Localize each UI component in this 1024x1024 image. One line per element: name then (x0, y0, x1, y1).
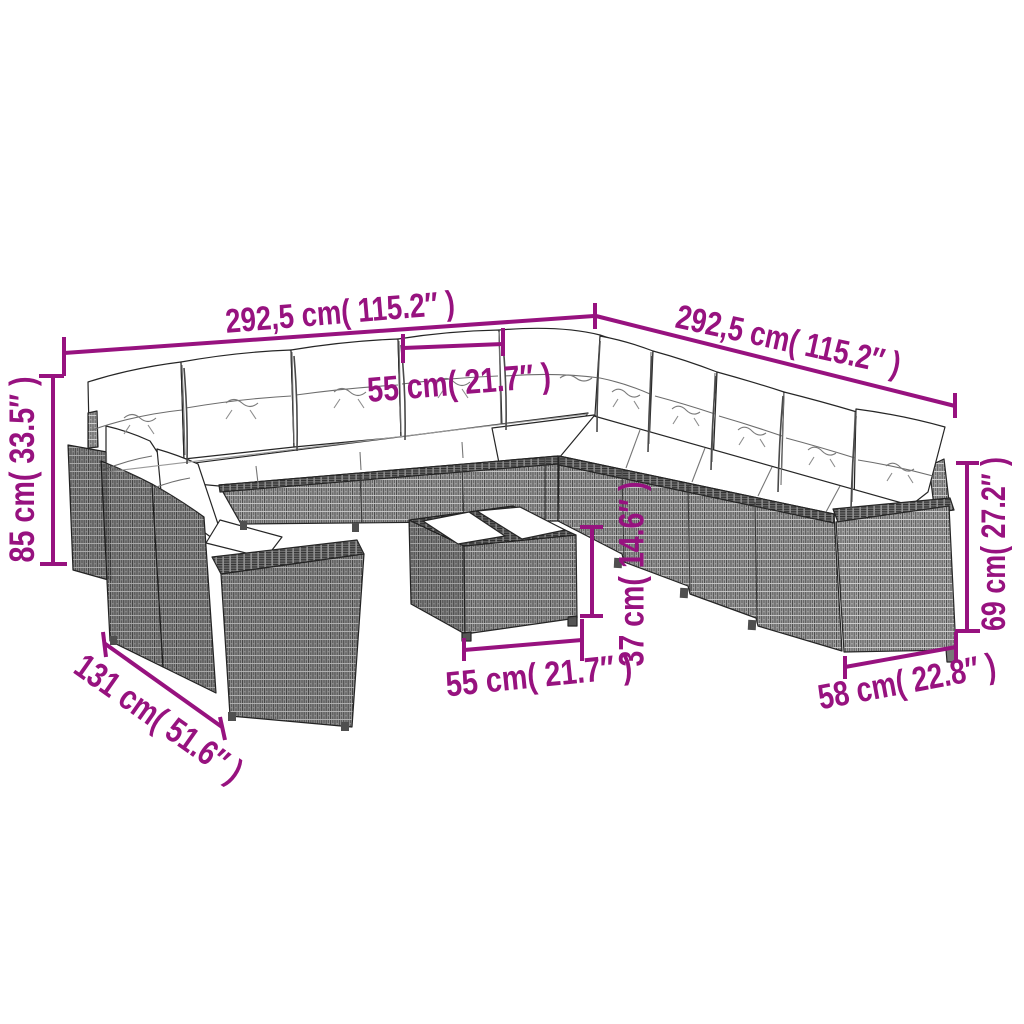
svg-text:85 cm( 33.5″ ): 85 cm( 33.5″ ) (3, 377, 42, 563)
svg-text:69 cm( 27.2″ ): 69 cm( 27.2″ ) (975, 457, 1013, 631)
svg-text:37 cm( 14.6″ ): 37 cm( 14.6″ ) (613, 482, 652, 667)
